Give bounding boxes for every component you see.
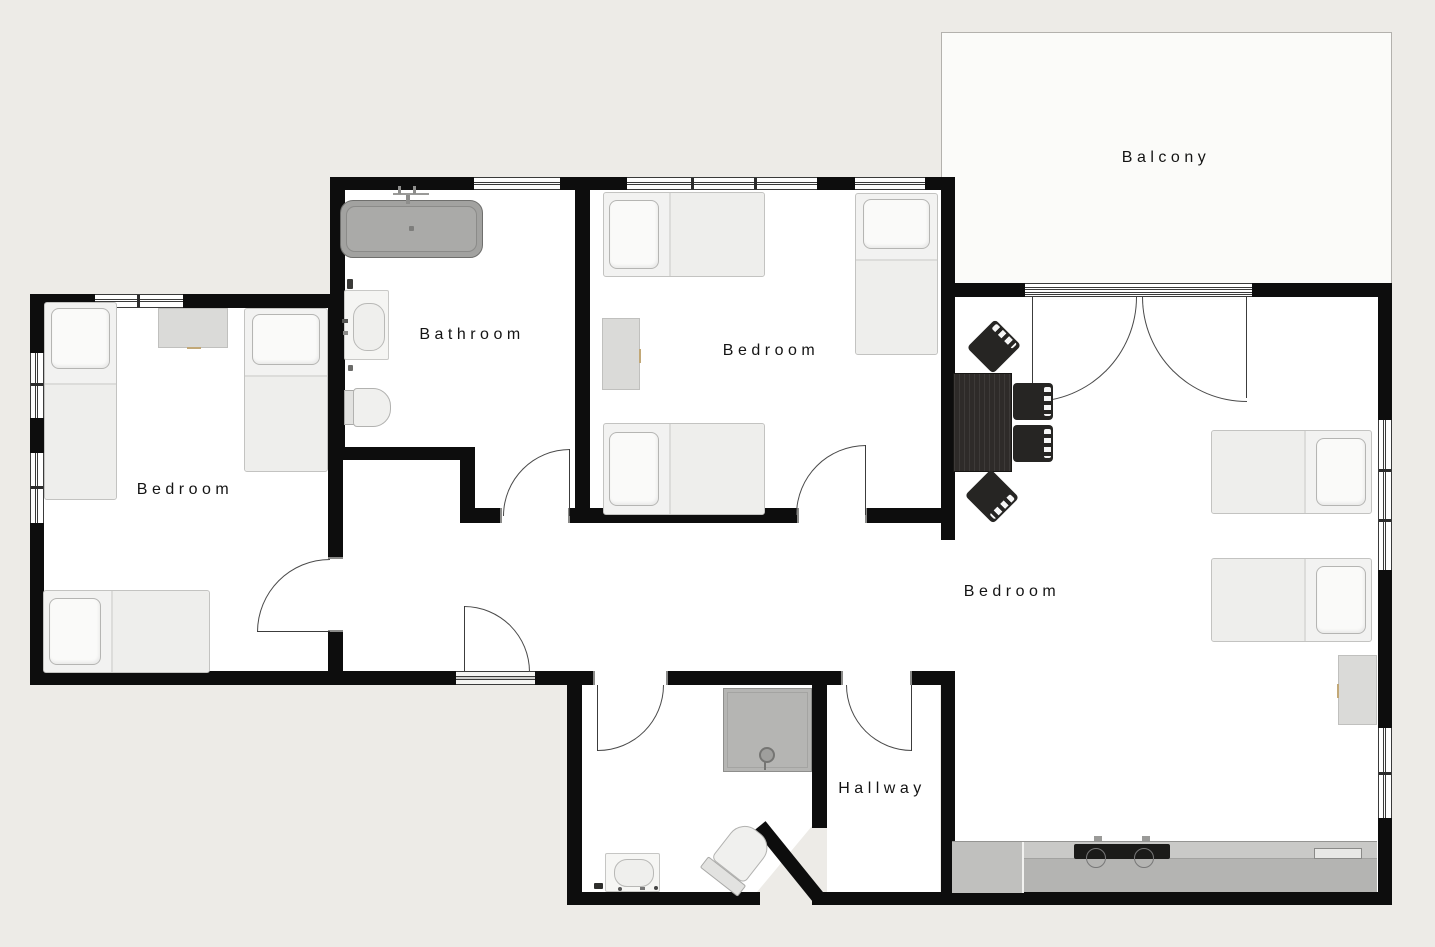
kitchen-sink: [1314, 848, 1362, 859]
door-leaf: [911, 685, 912, 751]
door-leaf: [257, 631, 330, 632]
wall: [460, 508, 500, 523]
dining-table: [953, 373, 1012, 472]
window: [474, 177, 560, 190]
wall: [30, 294, 44, 353]
bed: [43, 590, 210, 673]
wall: [812, 672, 827, 828]
nightstand: [1338, 655, 1377, 725]
balcony-door-window: [1025, 283, 1252, 297]
room-label-bathroom: Bathroom: [419, 326, 524, 344]
bed: [44, 302, 117, 500]
shower-room-sink: [605, 853, 660, 892]
wall: [941, 177, 955, 540]
sink-accessory: [618, 887, 622, 891]
wall: [575, 190, 590, 508]
fridge: [952, 842, 1024, 893]
sink-accessory: [594, 883, 603, 889]
wall: [1378, 570, 1392, 728]
bed: [1211, 430, 1372, 514]
wall: [328, 632, 343, 685]
wall: [560, 177, 627, 190]
wall: [812, 892, 1392, 905]
desk: [158, 308, 228, 348]
door-leaf: [464, 606, 465, 672]
room-label-hallway: Hallway: [838, 780, 926, 798]
door-opening: [841, 671, 912, 685]
wall: [30, 671, 456, 685]
door-leaf: [1246, 297, 1247, 398]
floor-plan: Balcony Bathroom Bedroom Bedroom Bedroom…: [0, 0, 1435, 947]
door-opening: [593, 671, 668, 685]
hall-floor-main: [460, 523, 941, 671]
wall: [330, 447, 473, 460]
wall: [955, 283, 1025, 297]
bed: [1211, 558, 1372, 642]
shower: [723, 688, 812, 772]
bathtub-faucet: [393, 186, 431, 202]
chair: [1013, 425, 1053, 462]
wall: [817, 177, 855, 190]
wall: [1252, 283, 1392, 297]
shower-head-icon: [759, 747, 775, 763]
window: [627, 177, 817, 190]
sink-accessory: [348, 365, 353, 371]
room-label-balcony: Balcony: [1122, 149, 1210, 167]
bed: [855, 193, 938, 355]
window: [30, 353, 44, 418]
bed: [603, 192, 765, 277]
chair: [1013, 383, 1053, 420]
passage-floor: [941, 540, 955, 672]
door-leaf: [569, 449, 570, 516]
door-opening: [328, 557, 343, 632]
door-leaf: [597, 685, 598, 751]
toilet: [344, 388, 390, 425]
hall-floor-left: [343, 460, 460, 671]
bathroom-sink: [344, 290, 389, 360]
bed: [244, 308, 328, 472]
wall: [1378, 283, 1392, 420]
bed: [603, 423, 765, 515]
window: [1378, 420, 1392, 570]
window: [855, 177, 925, 190]
sink-accessory: [640, 887, 645, 890]
cooktop-icon: [1074, 844, 1170, 859]
door-leaf: [865, 445, 866, 515]
wall: [535, 671, 593, 685]
kitchen-counter: [952, 841, 1377, 892]
wall: [183, 294, 343, 308]
room-label-bedroom-right: Bedroom: [964, 583, 1060, 601]
wall: [30, 523, 44, 684]
room-label-bedroom-center: Bedroom: [723, 342, 819, 360]
sink-accessory: [654, 886, 658, 890]
window: [30, 453, 44, 523]
sink-accessory: [347, 279, 353, 289]
room-label-bedroom-left: Bedroom: [137, 481, 233, 499]
entry-door-threshold: [456, 671, 535, 685]
wall: [30, 418, 44, 453]
wall: [567, 672, 582, 905]
desk: [602, 318, 640, 390]
window: [1378, 728, 1392, 818]
bathtub: [340, 200, 483, 258]
